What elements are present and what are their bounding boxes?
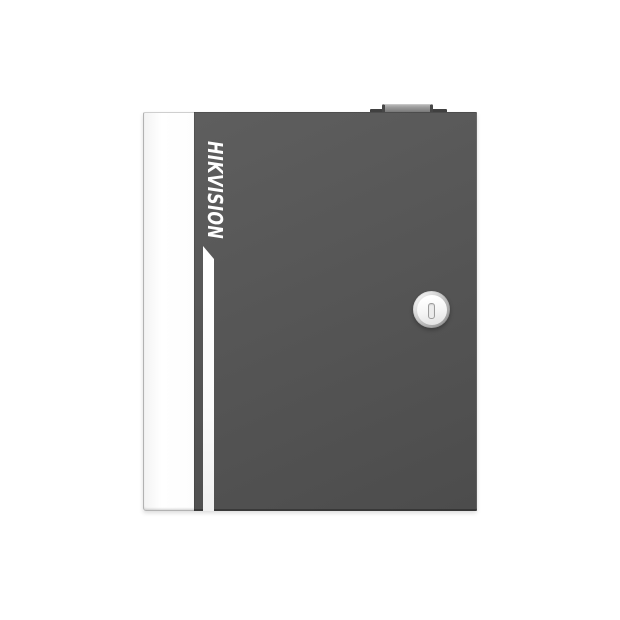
keyhole-icon	[428, 303, 435, 319]
hinge-side-panel	[143, 112, 194, 511]
enclosure-body: HIKVISION	[143, 112, 477, 511]
brand-logo: HIKVISION	[207, 141, 223, 239]
product-photo: HIKVISION	[0, 0, 620, 620]
front-door: HIKVISION	[194, 112, 477, 511]
accent-stripe	[203, 246, 214, 511]
cam-lock	[413, 291, 450, 328]
lock-face	[417, 295, 447, 325]
